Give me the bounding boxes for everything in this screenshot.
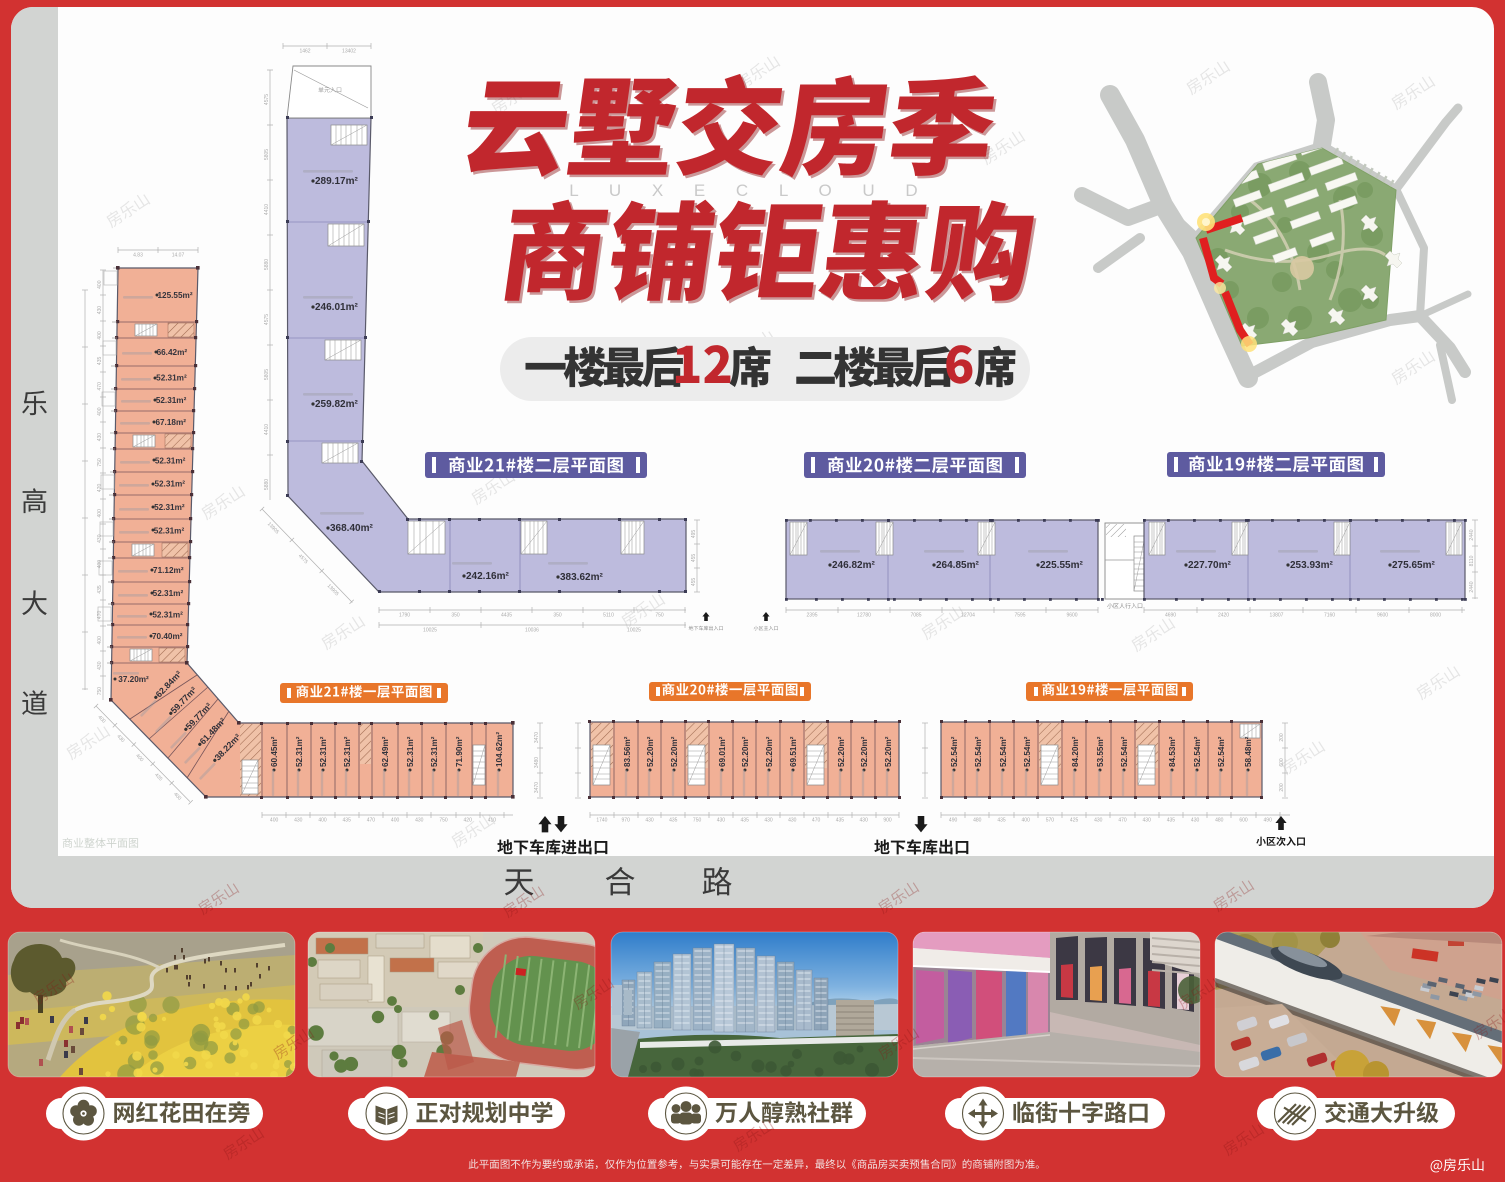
svg-text:13402: 13402	[342, 49, 356, 55]
svg-text:430: 430	[415, 818, 424, 824]
svg-text:5880: 5880	[264, 259, 270, 270]
svg-text:970: 970	[622, 818, 631, 824]
svg-text:435: 435	[741, 818, 750, 824]
svg-text:400: 400	[97, 509, 103, 518]
svg-text:435: 435	[1167, 818, 1176, 824]
svg-text:52.20m²: 52.20m²	[670, 736, 679, 767]
svg-text:2420: 2420	[1218, 613, 1229, 619]
svg-text:5880: 5880	[264, 479, 270, 490]
svg-text:600: 600	[1239, 818, 1248, 824]
svg-text:253.93m²: 253.93m²	[1290, 560, 1333, 571]
svg-text:52.31m²: 52.31m²	[156, 374, 187, 383]
svg-text:12780: 12780	[857, 613, 871, 619]
svg-text:1462: 1462	[299, 49, 310, 55]
svg-text:52.54m²: 52.54m²	[974, 736, 983, 767]
svg-text:1740: 1740	[596, 818, 607, 824]
svg-text:600: 600	[1279, 758, 1285, 767]
svg-text:52.31m²: 52.31m²	[406, 736, 415, 767]
svg-text:52.20m²: 52.20m²	[741, 736, 750, 767]
svg-text:470: 470	[1118, 818, 1127, 824]
svg-text:435: 435	[669, 818, 678, 824]
svg-text:52.31m²: 52.31m²	[154, 527, 185, 536]
svg-text:400: 400	[1022, 818, 1031, 824]
svg-text:4410: 4410	[264, 424, 270, 435]
svg-text:430: 430	[97, 433, 103, 442]
svg-text:52.31m²: 52.31m²	[152, 611, 183, 620]
svg-text:435: 435	[343, 818, 352, 824]
svg-text:368.40m²: 368.40m²	[330, 523, 373, 534]
svg-text:14.07: 14.07	[172, 253, 185, 259]
svg-text:52.31m²: 52.31m²	[319, 736, 328, 767]
svg-text:52.20m²: 52.20m²	[765, 736, 774, 767]
svg-text:4.83: 4.83	[133, 253, 143, 259]
svg-text:400: 400	[391, 818, 400, 824]
svg-text:52.20m²: 52.20m²	[837, 736, 846, 767]
svg-text:400: 400	[318, 818, 327, 824]
svg-text:4690: 4690	[1165, 613, 1176, 619]
svg-text:2395: 2395	[806, 613, 817, 619]
svg-text:430: 430	[788, 818, 797, 824]
svg-text:70.40m²: 70.40m²	[152, 632, 183, 641]
svg-text:430: 430	[1143, 818, 1152, 824]
svg-text:350: 350	[553, 613, 562, 619]
svg-text:37.20m²: 37.20m²	[118, 675, 149, 684]
svg-text:480: 480	[1215, 818, 1224, 824]
svg-text:13807: 13807	[1270, 613, 1284, 619]
svg-text:350: 350	[451, 613, 460, 619]
svg-text:58.48m²: 58.48m²	[1244, 736, 1253, 767]
svg-text:7595: 7595	[1014, 613, 1025, 619]
svg-text:10025: 10025	[423, 628, 437, 634]
svg-text:430: 430	[717, 818, 726, 824]
svg-text:420: 420	[464, 818, 473, 824]
svg-text:200: 200	[1279, 783, 1285, 792]
svg-text:10025: 10025	[627, 628, 641, 634]
svg-text:400: 400	[270, 818, 279, 824]
svg-text:4410: 4410	[264, 204, 270, 215]
svg-text:430: 430	[294, 818, 303, 824]
svg-text:62.49m²: 62.49m²	[381, 736, 390, 767]
svg-text:52.54m²: 52.54m²	[1120, 736, 1129, 767]
svg-text:53.55m²: 53.55m²	[1096, 736, 1105, 767]
svg-text:490: 490	[949, 818, 958, 824]
svg-text:430: 430	[97, 306, 103, 315]
svg-text:435: 435	[836, 818, 845, 824]
svg-text:750: 750	[97, 687, 103, 696]
svg-text:900: 900	[883, 818, 892, 824]
svg-text:5805: 5805	[264, 149, 270, 160]
svg-text:289.17m²: 289.17m²	[315, 176, 358, 187]
svg-text:490: 490	[1264, 818, 1273, 824]
svg-text:470: 470	[367, 818, 376, 824]
svg-text:52.54m²: 52.54m²	[1023, 736, 1032, 767]
svg-text:52.31m²: 52.31m²	[153, 589, 184, 598]
svg-text:5110: 5110	[603, 613, 614, 619]
svg-text:12704: 12704	[961, 613, 975, 619]
svg-text:84.20m²: 84.20m²	[1071, 736, 1080, 767]
svg-text:430: 430	[1094, 818, 1103, 824]
svg-text:470: 470	[97, 611, 103, 620]
svg-text:104.62m²: 104.62m²	[495, 732, 504, 767]
svg-text:69.01m²: 69.01m²	[718, 736, 727, 767]
svg-text:246.82m²: 246.82m²	[832, 560, 875, 571]
svg-text:435: 435	[97, 357, 103, 366]
svg-text:2440: 2440	[1469, 529, 1475, 540]
svg-text:52.20m²: 52.20m²	[646, 736, 655, 767]
svg-text:71.12m²: 71.12m²	[153, 566, 184, 575]
svg-text:4575: 4575	[264, 94, 270, 105]
svg-text:71.90m²: 71.90m²	[455, 736, 464, 767]
svg-text:52.20m²: 52.20m²	[884, 736, 893, 767]
svg-text:750: 750	[97, 458, 103, 467]
svg-text:3480: 3480	[534, 757, 540, 768]
svg-text:275.65m²: 275.65m²	[1392, 560, 1435, 571]
svg-text:67.18m²: 67.18m²	[155, 418, 186, 427]
svg-text:5805: 5805	[264, 369, 270, 380]
svg-text:420: 420	[97, 484, 103, 493]
svg-text:400: 400	[97, 636, 103, 645]
svg-text:69.51m²: 69.51m²	[789, 736, 798, 767]
svg-text:750: 750	[655, 613, 664, 619]
svg-text:430: 430	[860, 818, 869, 824]
svg-text:470: 470	[97, 382, 103, 391]
svg-text:435: 435	[997, 818, 1006, 824]
svg-text:225.55m²: 225.55m²	[1040, 560, 1083, 571]
svg-text:1790: 1790	[399, 613, 410, 619]
svg-text:570: 570	[1046, 818, 1055, 824]
svg-text:246.01m²: 246.01m²	[315, 302, 358, 313]
svg-text:52.31m²: 52.31m²	[154, 480, 185, 489]
svg-text:9600: 9600	[1377, 613, 1388, 619]
svg-text:495: 495	[691, 530, 697, 539]
svg-text:4435: 4435	[501, 613, 512, 619]
svg-text:242.16m²: 242.16m²	[466, 571, 509, 582]
svg-text:52.31m²: 52.31m²	[430, 736, 439, 767]
svg-text:430: 430	[97, 534, 103, 543]
svg-text:400: 400	[97, 331, 103, 340]
svg-text:430: 430	[97, 661, 103, 670]
svg-text:400: 400	[97, 407, 103, 416]
svg-text:8000: 8000	[1430, 613, 1441, 619]
svg-text:410: 410	[488, 818, 497, 824]
svg-text:52.54m²: 52.54m²	[950, 736, 959, 767]
svg-text:259.82m²: 259.82m²	[315, 399, 358, 410]
svg-text:430: 430	[1191, 818, 1200, 824]
svg-text:66.42m²: 66.42m²	[157, 348, 188, 357]
svg-text:L U X E C L O U D: L U X E C L O U D	[569, 181, 930, 200]
svg-text:750: 750	[693, 818, 702, 824]
svg-text:125.55m²: 125.55m²	[158, 291, 193, 300]
svg-text:3470: 3470	[534, 732, 540, 743]
svg-text:430: 430	[764, 818, 773, 824]
svg-text:60.45m²: 60.45m²	[270, 736, 279, 767]
svg-text:52.54m²: 52.54m²	[1193, 736, 1202, 767]
svg-text:7085: 7085	[910, 613, 921, 619]
svg-text:52.31m²: 52.31m²	[155, 457, 186, 466]
svg-text:470: 470	[812, 818, 821, 824]
svg-text:8110: 8110	[1469, 555, 1475, 566]
svg-text:52.31m²: 52.31m²	[156, 396, 187, 405]
svg-text:227.70m²: 227.70m²	[1188, 560, 1231, 571]
svg-text:200: 200	[1279, 733, 1285, 742]
svg-text:52.31m²: 52.31m²	[295, 736, 304, 767]
svg-text:52.54m²: 52.54m²	[999, 736, 1008, 767]
svg-text:52.20m²: 52.20m²	[860, 736, 869, 767]
svg-text:480: 480	[973, 818, 982, 824]
svg-text:10036: 10036	[525, 628, 539, 634]
svg-text:455: 455	[691, 578, 697, 587]
svg-text:750: 750	[439, 818, 448, 824]
svg-text:435: 435	[97, 585, 103, 594]
svg-text:3470: 3470	[534, 782, 540, 793]
svg-text:264.85m²: 264.85m²	[936, 560, 979, 571]
svg-text:455: 455	[691, 554, 697, 563]
svg-text:52.31m²: 52.31m²	[343, 736, 352, 767]
svg-text:83.56m²: 83.56m²	[623, 736, 632, 767]
svg-text:400: 400	[97, 560, 103, 569]
svg-text:430: 430	[645, 818, 654, 824]
svg-text:9600: 9600	[1066, 613, 1077, 619]
svg-text:2440: 2440	[1469, 581, 1475, 592]
svg-text:7160: 7160	[1324, 613, 1335, 619]
svg-text:425: 425	[1070, 818, 1079, 824]
svg-text:383.62m²: 383.62m²	[560, 572, 603, 583]
svg-text:52.54m²: 52.54m²	[1217, 736, 1226, 767]
svg-text:84.53m²: 84.53m²	[1168, 736, 1177, 767]
svg-text:4575: 4575	[264, 314, 270, 325]
svg-text:400: 400	[97, 280, 103, 289]
svg-text:52.31m²: 52.31m²	[154, 503, 185, 512]
